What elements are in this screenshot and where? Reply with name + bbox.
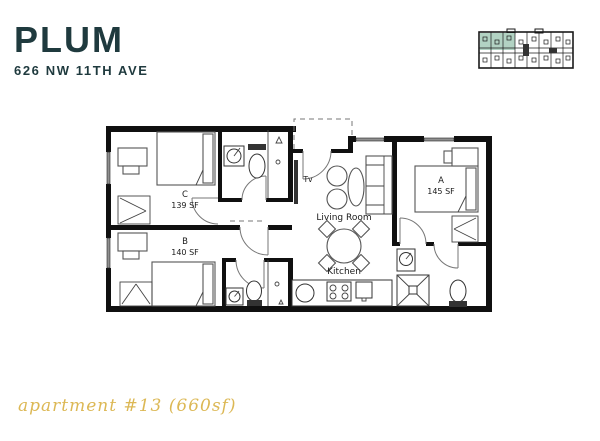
bed-pillow — [203, 264, 213, 304]
toilet-icon — [247, 281, 262, 301]
toilet-tank — [449, 301, 467, 307]
bed-pillow — [466, 168, 476, 210]
tv — [294, 160, 298, 204]
shower-drain-icon — [275, 282, 279, 286]
bedroom-b-furniture — [118, 233, 215, 306]
entry-dashed-outline — [294, 119, 352, 149]
closet — [118, 196, 150, 224]
bedroom-a-area: 145 SF — [427, 187, 455, 196]
stove-icon — [327, 282, 351, 301]
round-chair — [327, 166, 347, 186]
desk — [118, 148, 147, 166]
shower-icon — [397, 275, 429, 306]
desk-chair — [444, 151, 452, 163]
desk — [452, 148, 478, 166]
kitchen-sink-icon — [296, 284, 314, 302]
round-chair — [327, 189, 347, 209]
shower-head-icon — [279, 300, 283, 304]
bedroom-b-area: 140 SF — [171, 248, 199, 257]
desk-chair — [123, 166, 139, 174]
bed-pillow — [203, 134, 213, 183]
closet — [452, 216, 478, 242]
window-left-c — [107, 152, 110, 184]
toilet-icon — [249, 154, 265, 178]
window-left-b — [107, 238, 110, 268]
dining-table — [327, 229, 361, 263]
dishwasher-icon — [356, 282, 372, 301]
bathroom-3-fixtures — [226, 260, 283, 306]
kitchen-label: Kitchen — [327, 267, 361, 277]
bedroom-a-label: A — [438, 176, 444, 186]
apartment-caption: apartment #13 (660sf) — [18, 396, 236, 416]
closet — [120, 282, 152, 306]
desk-chair — [123, 251, 139, 259]
couch — [366, 156, 392, 214]
bathroom-2-fixtures — [397, 249, 467, 307]
kitchen-furniture — [292, 221, 392, 306]
toilet-icon — [450, 280, 466, 302]
shower-drain-icon — [276, 160, 280, 164]
bedroom-b-label: B — [182, 237, 188, 247]
living-room-label: Living Room — [316, 213, 371, 223]
window-top-living — [356, 138, 384, 141]
bedroom-c-furniture — [118, 132, 215, 224]
living-room-furniture — [294, 156, 392, 214]
bedroom-c-area: 139 SF — [171, 201, 199, 210]
window-top-a — [424, 138, 454, 141]
toilet-tank — [248, 144, 266, 150]
bedroom-c-label: C — [182, 190, 188, 200]
bathroom-1-fixtures — [224, 130, 282, 198]
desk — [118, 233, 147, 251]
tv-label: Tv — [302, 175, 313, 184]
coffee-table — [348, 168, 364, 206]
floor-plan: C 139 SF B 140 SF A 145 SF Living Room K… — [0, 0, 600, 441]
shower-head-icon — [276, 137, 282, 143]
toilet-tank — [247, 300, 262, 306]
